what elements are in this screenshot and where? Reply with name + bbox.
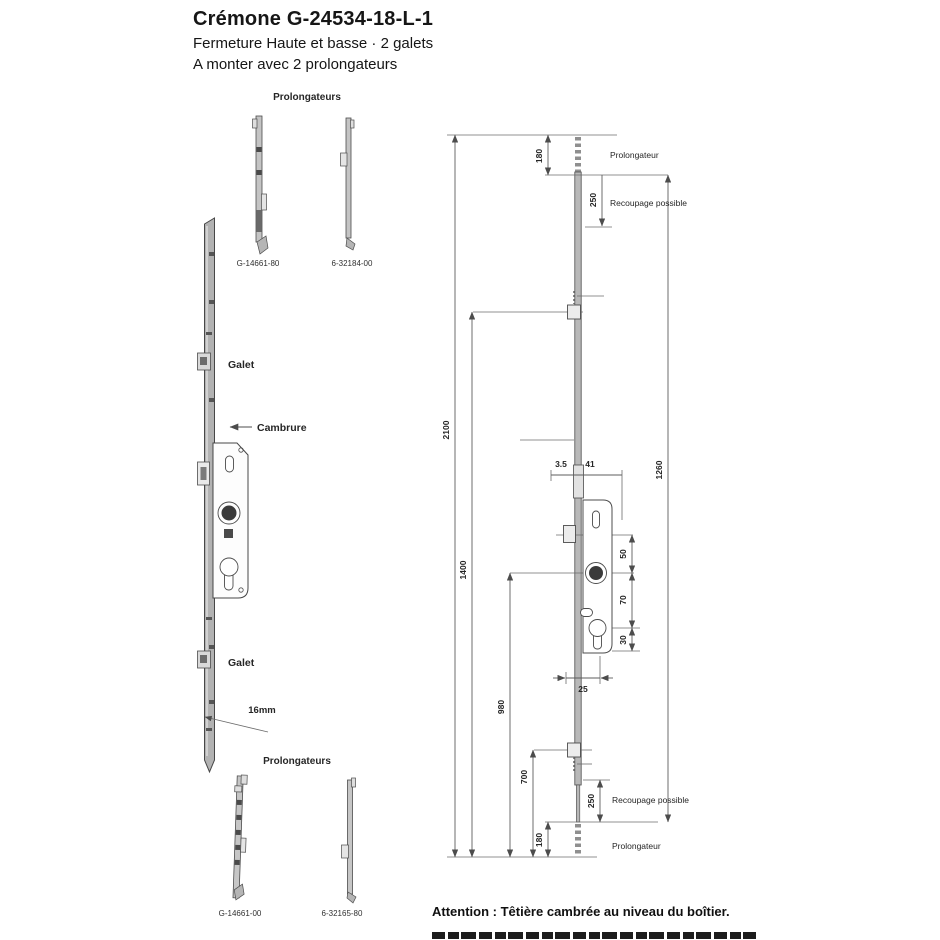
dim-recoupage-bottom: 250: [586, 794, 596, 808]
part-number-bottom-right: 6-32165-80: [322, 909, 363, 918]
galet-on-case: [564, 526, 576, 543]
dim-handle-to-cylinder: 70: [618, 595, 628, 605]
galet-bottom-label: Galet: [228, 657, 255, 669]
top-prolongateurs-group-label: Prolongateurs: [273, 92, 341, 103]
dim-face-offset: 3.5: [555, 459, 567, 469]
prolongateur-part-bottom-right: [342, 778, 357, 903]
part-number-bottom-left: G-14661-00: [219, 909, 262, 918]
dim-cylinder-to-case-end: 30: [618, 635, 628, 645]
rail-width-label: 16mm: [248, 705, 275, 716]
dim-galets-span: 1400: [458, 560, 468, 579]
bottom-prolongateurs-group-label: Prolongateurs: [263, 756, 331, 767]
galet-roller-bottom: [198, 651, 211, 668]
cutoff-text-strip: [432, 932, 756, 939]
cremone-rail-illustration: [198, 218, 215, 772]
dim-body-span: 1260: [654, 460, 664, 479]
dim-backset: 41: [585, 459, 595, 469]
attention-note: Attention : Têtière cambrée au niveau du…: [432, 904, 730, 919]
handle-follower-detail: [589, 566, 603, 580]
prolongateur-part-bottom-left: [231, 775, 248, 900]
recoupage-bottom-note: Recoupage possible: [612, 795, 689, 805]
dim-prolongateur-overlap-bottom: 180: [534, 833, 544, 847]
reference-lines: [447, 135, 668, 857]
euro-cylinder-detail: [589, 620, 606, 637]
cambrure-label: Cambrure: [257, 422, 307, 434]
technical-drawing-canvas: Prolongateurs G-14661-80 6-32184-00: [0, 0, 940, 940]
dim-recoupage-top: 250: [588, 193, 598, 207]
dim-prolongateur-overlap-top: 180: [534, 149, 544, 163]
handle-follower-square: [222, 506, 237, 521]
galet-top-label: Galet: [228, 359, 255, 371]
left-illustrations: Prolongateurs G-14661-80 6-32184-00: [198, 92, 374, 918]
galet-roller-top: [198, 353, 211, 370]
dim-total-length: 2100: [441, 420, 451, 439]
prolongateur-part-top-right: [341, 118, 356, 250]
dim-galet-bottom-to-end: 700: [519, 770, 529, 784]
dimensioned-drawing: 2100 1400 980 700 1260 180 250 250 180: [441, 135, 689, 857]
product-diagram-page: Crémone G-24534-18-L-1 Fermeture Haute e…: [0, 0, 940, 940]
dim-galet-to-handle: 50: [618, 549, 628, 559]
dim-handle-to-end: 980: [496, 700, 506, 714]
part-number-top-right: 6-32184-00: [332, 259, 373, 268]
recoupage-top-note: Recoupage possible: [610, 198, 687, 208]
part-number-top-left: G-14661-80: [237, 259, 280, 268]
vertical-dimensions: 2100 1400 980 700 1260 180 250 250 180: [441, 135, 668, 857]
lock-case-detail: [564, 500, 613, 653]
prolongateur-part-top-left: [253, 116, 269, 254]
dim-case-width: 25: [578, 684, 588, 694]
gearbox-segment: [574, 465, 584, 498]
prolongateur-bottom-note: Prolongateur: [612, 841, 661, 851]
euro-cylinder-hole: [220, 558, 238, 576]
prolongateur-top-note: Prolongateur: [610, 150, 659, 160]
